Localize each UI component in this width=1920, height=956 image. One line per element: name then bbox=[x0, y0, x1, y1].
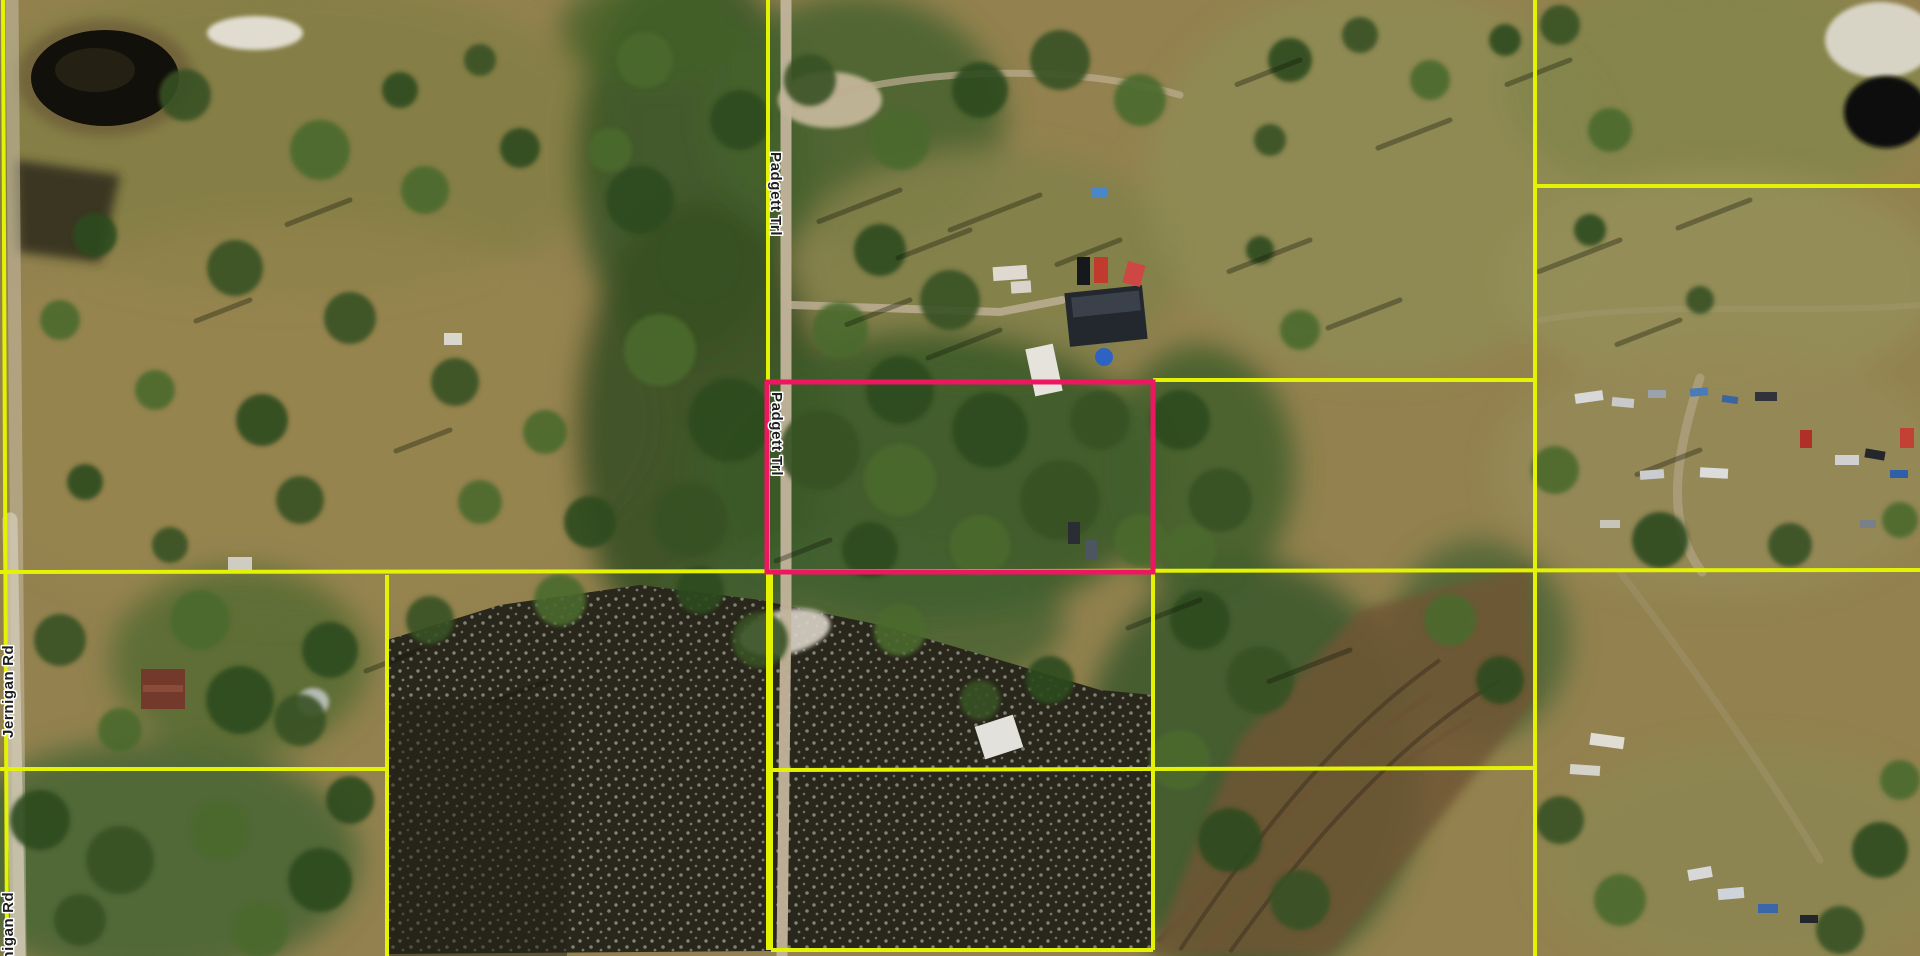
tree-canopy bbox=[1816, 906, 1864, 954]
tree-canopy bbox=[302, 622, 358, 678]
tree-canopy bbox=[617, 32, 673, 88]
tree-canopy bbox=[207, 240, 263, 296]
junk-vehicle bbox=[1800, 430, 1812, 448]
tree-canopy bbox=[159, 69, 211, 121]
tree-canopy bbox=[1574, 214, 1606, 246]
tree-canopy bbox=[10, 790, 70, 850]
tree-canopy bbox=[1020, 460, 1100, 540]
tree-canopy bbox=[870, 110, 930, 170]
tree-canopy bbox=[660, 220, 740, 300]
tree-canopy bbox=[98, 708, 142, 752]
tree-canopy bbox=[606, 166, 674, 234]
tree-canopy bbox=[1882, 502, 1918, 538]
tree-canopy bbox=[1588, 108, 1632, 152]
tree-canopy bbox=[1852, 822, 1908, 878]
terrain-imagery bbox=[0, 0, 1920, 956]
red-car bbox=[1094, 257, 1108, 283]
aerial-map-canvas[interactable]: Padgett TrlPadgett TrlJernigan RdJerniga… bbox=[0, 0, 1920, 956]
tree-canopy bbox=[1226, 646, 1294, 714]
tree-canopy bbox=[1164, 524, 1216, 576]
tree-canopy bbox=[276, 476, 324, 524]
tree-canopy bbox=[67, 464, 103, 500]
junk-vehicle bbox=[1690, 387, 1709, 397]
tree-canopy bbox=[866, 356, 934, 424]
tree-canopy bbox=[1632, 512, 1688, 568]
tree-canopy bbox=[864, 444, 936, 516]
junk-vehicle bbox=[1900, 428, 1914, 448]
tree-canopy bbox=[190, 800, 250, 860]
tree-canopy bbox=[1594, 874, 1646, 926]
tree-canopy bbox=[854, 224, 906, 276]
tree-canopy bbox=[54, 894, 106, 946]
tree-canopy bbox=[274, 694, 326, 746]
tree-canopy bbox=[1540, 5, 1580, 45]
junk-trailer bbox=[1640, 469, 1665, 480]
tree-canopy bbox=[1410, 60, 1450, 100]
tree-canopy bbox=[652, 482, 728, 558]
junk-vehicle bbox=[1755, 392, 1777, 401]
tree-canopy bbox=[458, 480, 502, 524]
tree-canopy bbox=[86, 826, 154, 894]
vehicle bbox=[1758, 904, 1778, 913]
tree-canopy bbox=[34, 614, 86, 666]
tree-canopy bbox=[1476, 656, 1524, 704]
tree-canopy bbox=[290, 120, 350, 180]
vehicle-on-trail bbox=[1068, 522, 1080, 544]
tree-canopy bbox=[152, 527, 188, 563]
vehicle bbox=[1718, 887, 1745, 900]
tree-canopy bbox=[1030, 30, 1090, 90]
white-shed bbox=[1011, 280, 1032, 293]
tree-canopy bbox=[624, 314, 696, 386]
road-label-jernigan-rd-lower: Jernigan Rd bbox=[0, 892, 17, 956]
tree-canopy bbox=[431, 358, 479, 406]
white-object bbox=[444, 333, 462, 345]
tree-canopy bbox=[960, 680, 1000, 720]
tree-canopy bbox=[950, 515, 1010, 575]
tree-canopy bbox=[1198, 808, 1262, 872]
tree-canopy bbox=[232, 902, 288, 956]
tree-canopy bbox=[382, 72, 418, 108]
tree-canopy bbox=[952, 62, 1008, 118]
tree-canopy bbox=[73, 213, 117, 257]
junk-trailer bbox=[1700, 467, 1728, 478]
tree-canopy bbox=[710, 90, 770, 150]
tree-canopy bbox=[406, 596, 454, 644]
junk-vehicle bbox=[1860, 520, 1876, 528]
tree-canopy bbox=[1026, 656, 1074, 704]
tree-canopy bbox=[1070, 390, 1130, 450]
tree-canopy bbox=[1342, 17, 1378, 53]
tree-canopy bbox=[500, 128, 540, 168]
tree-canopy bbox=[1270, 870, 1330, 930]
junk-trailer bbox=[1612, 397, 1635, 408]
white-shed bbox=[993, 265, 1028, 281]
tree-canopy bbox=[732, 612, 788, 668]
junk-trailer bbox=[1600, 520, 1620, 528]
tree-canopy bbox=[1686, 286, 1714, 314]
aerial-map-viewport: Padgett TrlPadgett TrlJernigan RdJerniga… bbox=[0, 0, 1920, 956]
tree-canopy bbox=[464, 44, 496, 76]
tree-canopy bbox=[1150, 390, 1210, 450]
white-debris bbox=[1570, 764, 1601, 776]
tree-canopy bbox=[1489, 24, 1521, 56]
tree-canopy bbox=[1536, 796, 1584, 844]
tree-canopy bbox=[1254, 124, 1286, 156]
vehicle-on-trail bbox=[1085, 540, 1097, 560]
tree-canopy bbox=[920, 270, 980, 330]
tree-canopy bbox=[206, 666, 274, 734]
road-label-padgett-trl-north: Padgett Trl bbox=[767, 152, 784, 236]
tree-canopy bbox=[1268, 38, 1312, 82]
tree-canopy bbox=[688, 378, 772, 462]
road-label-padgett-trl-south: Padgett Trl bbox=[768, 392, 785, 476]
road-label-jernigan-rd-upper: Jernigan Rd bbox=[0, 645, 17, 738]
tree-canopy bbox=[1280, 310, 1320, 350]
tree-canopy bbox=[1768, 523, 1812, 567]
tree-canopy bbox=[326, 776, 374, 824]
tree-canopy bbox=[1880, 760, 1920, 800]
tree-canopy bbox=[288, 848, 352, 912]
house-ridge bbox=[143, 685, 183, 692]
tree-canopy bbox=[40, 300, 80, 340]
tree-canopy bbox=[780, 410, 860, 490]
tree-canopy bbox=[1188, 468, 1252, 532]
vehicle bbox=[1800, 915, 1818, 923]
tree-canopy bbox=[1424, 594, 1476, 646]
tree-canopy bbox=[1114, 74, 1166, 126]
tree-canopy bbox=[523, 410, 567, 454]
tree-canopy bbox=[1531, 446, 1579, 494]
tree-canopy bbox=[236, 394, 288, 446]
tree-canopy bbox=[534, 574, 586, 626]
tree-canopy bbox=[564, 496, 616, 548]
tree-canopy bbox=[812, 302, 868, 358]
tree-canopy bbox=[784, 54, 836, 106]
blue-tarp bbox=[1091, 188, 1107, 197]
tree-canopy bbox=[874, 604, 926, 656]
tree-canopy bbox=[401, 166, 449, 214]
junk-vehicle bbox=[1648, 390, 1666, 398]
tree-canopy bbox=[324, 292, 376, 344]
tree-canopy bbox=[952, 392, 1028, 468]
blue-dome-tank bbox=[1095, 348, 1113, 366]
junk-vehicle bbox=[1890, 470, 1908, 478]
tree-canopy bbox=[1150, 730, 1210, 790]
tree-canopy bbox=[1114, 514, 1166, 566]
tree-canopy bbox=[135, 370, 175, 410]
dark-car bbox=[1077, 257, 1090, 285]
tree-canopy bbox=[170, 590, 230, 650]
junk-trailer bbox=[1835, 455, 1859, 465]
tree-canopy bbox=[588, 128, 632, 172]
